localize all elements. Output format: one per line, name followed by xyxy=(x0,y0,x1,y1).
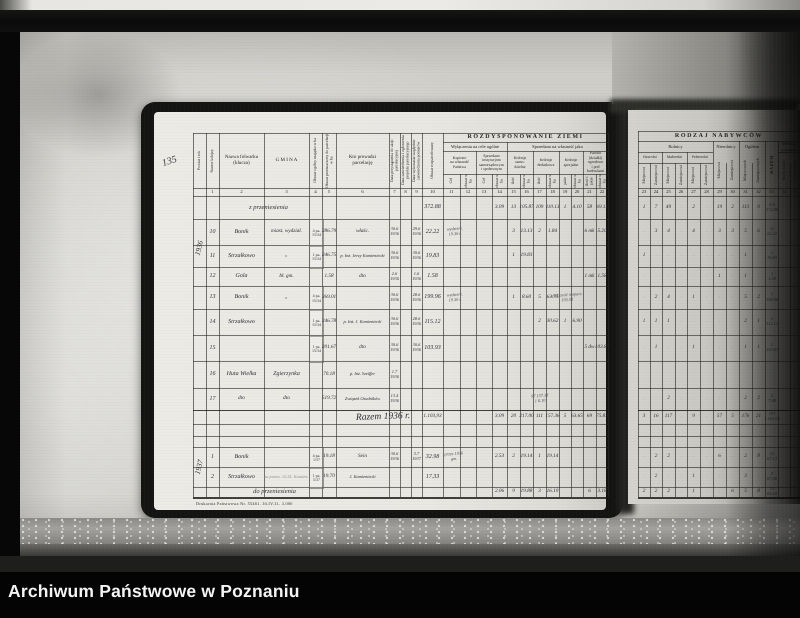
header-unit: obszar w ha xyxy=(546,174,559,188)
handwritten-cell: Bonik xyxy=(219,286,264,309)
archival-photo-scene: 135 Drukarnia Państwowa Nr. 55481. 30.IV… xyxy=(0,0,800,618)
handwritten-cell: 109 xyxy=(533,196,546,219)
ditto-dot: · xyxy=(726,245,739,267)
header-cell: Miejscowych xyxy=(739,152,752,188)
header-unit: Cel xyxy=(443,174,460,188)
handwritten-cell: 110.13 xyxy=(546,196,559,219)
ditto-dot: · xyxy=(700,219,713,245)
header-cell: Miejscowi xyxy=(713,152,726,188)
handwritten-cell: 8 xyxy=(752,487,765,497)
grid-line xyxy=(193,309,608,310)
ditto-dot: · xyxy=(700,410,713,424)
grid-line xyxy=(608,133,609,497)
handwritten-cell: 1 xyxy=(507,245,520,267)
handwritten-cell: 1.6 1936 xyxy=(411,267,422,286)
handwritten-cell: 2 xyxy=(752,388,765,410)
handwritten-cell: 117 xyxy=(662,410,675,424)
handwritten-cell: 30.6 1936 xyxy=(411,245,422,267)
handwritten-cell: 13.4 1936 xyxy=(389,388,400,410)
column-number: 25 xyxy=(662,188,675,196)
header-cell: Zamiejscowi xyxy=(650,163,662,188)
grid-line xyxy=(193,388,608,389)
column-number: 32 xyxy=(752,188,765,196)
handwritten-cell: 30.6 1936 xyxy=(389,245,400,267)
handwritten-cell: 3 xyxy=(507,219,520,245)
handwritten-cell: Strzałkowo xyxy=(219,309,264,335)
handwritten-cell: 1 xyxy=(752,335,765,361)
header-cell: Zamiejscowi xyxy=(700,163,713,188)
handwritten-cell: 1.103,93 xyxy=(422,410,443,424)
ditto-dot: · xyxy=(713,335,726,361)
column-number: 17 xyxy=(533,188,546,196)
grid-line xyxy=(193,487,608,488)
header-unit: obszar w ha xyxy=(596,174,608,188)
grid-line xyxy=(638,424,800,425)
handwritten-cell: 1 xyxy=(739,267,752,286)
handwritten-cell: 2 xyxy=(739,309,752,335)
grid-line xyxy=(638,309,800,310)
column-number: 24 xyxy=(650,188,662,196)
ditto-dot: · xyxy=(638,467,650,487)
header-unit: ilość i jakie xyxy=(583,174,596,188)
ditto-dot: · xyxy=(726,267,739,286)
handwritten-cell: 6.90 xyxy=(571,309,583,335)
grid-line xyxy=(638,286,800,287)
ditto-dot: · xyxy=(638,219,650,245)
caption-bar: Archiwum Państwowe w Poznaniu xyxy=(0,572,800,618)
handwritten-cell: 63.65 xyxy=(571,410,583,424)
handwritten-cell: 1 xyxy=(638,196,650,219)
handwritten-cell: 286.79 xyxy=(322,219,336,245)
grid-line xyxy=(476,151,477,497)
header-cell: Zamiejscowi xyxy=(726,152,739,188)
header-cell: Zamiejscowych xyxy=(752,152,765,188)
handwritten-cell: 19.83 xyxy=(422,245,443,267)
handwritten-cell: 16 xyxy=(206,361,219,388)
handwritten-cell: 30.6 1936 xyxy=(389,219,400,245)
ditto-dot: · xyxy=(675,309,687,335)
handwritten-cell: 105.87 xyxy=(520,196,533,219)
grid-line xyxy=(638,497,800,499)
ditto-dot: · xyxy=(687,309,700,335)
header-unit: obszar w ha xyxy=(520,174,533,188)
header-subgroup: Pełnorolni xyxy=(687,152,713,163)
handwritten-cell: 6 xyxy=(726,487,739,497)
column-number: 18 xyxy=(546,188,559,196)
ditto-dot: · xyxy=(650,245,662,267)
column-number: 7 xyxy=(389,188,400,196)
handwritten-cell: 1 xyxy=(638,309,650,335)
ditto-dot: · xyxy=(650,388,662,410)
ditto-dot: · xyxy=(687,447,700,467)
header-unit: ilość xyxy=(533,174,546,188)
header-cell-prz: Obszar przeznaczony do parcelacji w ha xyxy=(322,133,336,188)
handwritten-cell: 8.60 xyxy=(520,286,533,309)
column-number: 30 xyxy=(726,188,739,196)
handwritten-cell: 4 xyxy=(687,219,700,245)
handwritten-cell: 1 xyxy=(687,487,700,497)
grid-line xyxy=(193,245,608,246)
handwritten-cell: 30.6 1936 xyxy=(389,447,400,467)
grid-line xyxy=(193,335,608,336)
column-number: 1 xyxy=(206,188,219,196)
column-number: 6 xyxy=(336,188,389,196)
handwritten-cell: 2 xyxy=(507,447,520,467)
handwritten-cell: 1 xyxy=(687,467,700,487)
header-unit: jakie xyxy=(559,174,571,188)
grid-line xyxy=(193,424,608,425)
handwritten-cell: 1 xyxy=(533,447,546,467)
grid-line xyxy=(638,436,800,437)
ditto-dot: · xyxy=(675,467,687,487)
grid-line xyxy=(638,335,800,336)
ditto-dot: · xyxy=(662,245,675,267)
grid-line xyxy=(638,245,800,246)
handwritten-cell: 14 xyxy=(206,309,219,335)
column-number: 31 xyxy=(739,188,752,196)
header-cell-n: Numer kolejny xyxy=(206,133,219,188)
handwritten-cell: 1 xyxy=(739,335,752,361)
column-number: 5 xyxy=(322,188,336,196)
handwritten-cell: 19.88 xyxy=(520,487,533,497)
handwritten-cell: 1 xyxy=(559,309,571,335)
handwritten-cell: 5 xyxy=(739,487,752,497)
handwritten-cell: 1 xyxy=(713,267,726,286)
column-number: 28 xyxy=(700,188,713,196)
handwritten-cell: 9 xyxy=(687,410,700,424)
header-subgroup: Bezrolni xyxy=(638,152,662,163)
header-unit: Cel xyxy=(476,174,492,188)
handwritten-cell: 2 xyxy=(687,196,700,219)
handwritten-cell: Strzałkowo xyxy=(219,467,264,487)
handwritten-cell: 2 xyxy=(650,447,662,467)
handwritten-cell: 3 xyxy=(713,219,726,245)
handwritten-cell: 201.67 xyxy=(322,335,336,361)
handwritten-cell: 13 xyxy=(507,196,520,219)
handwritten-cell: 21 xyxy=(752,410,765,424)
handwritten-cell: 5 dw xyxy=(583,335,596,361)
ditto-dot: · xyxy=(700,309,713,335)
ditto-dot: · xyxy=(700,487,713,497)
header-cell: Rzym.-katol. xyxy=(778,152,790,188)
handwritten-cell: 16 xyxy=(650,410,662,424)
handwritten-cell: 5 xyxy=(726,410,739,424)
handwritten-cell: Zgierzynka xyxy=(264,361,309,388)
handwritten-cell: 103.87 xyxy=(596,335,608,361)
grid-line xyxy=(638,467,800,468)
handwritten-cell: 3 xyxy=(533,487,546,497)
column-number: 2 xyxy=(219,188,264,196)
ditto-dot: · xyxy=(700,335,713,361)
handwritten-cell: 519.72 xyxy=(322,388,336,410)
header-group: Według wyznania xyxy=(778,141,800,152)
column-number xyxy=(193,188,206,196)
handwritten-cell: 1 xyxy=(650,335,662,361)
header-group: Parcele (działki) ogrodowe i pod budowla… xyxy=(583,151,608,174)
grid-line xyxy=(193,286,608,287)
handwritten-cell: 115.12 xyxy=(422,309,443,335)
ditto-dot: · xyxy=(700,267,713,286)
handwritten-cell: 19 xyxy=(713,196,726,219)
handwritten-cell: 4 xyxy=(662,286,675,309)
header-group: Nierolnicy xyxy=(713,141,739,152)
header-cell-kto: Kto prowadzi parcelację xyxy=(336,133,389,188)
ditto-dot: · xyxy=(700,388,713,410)
header-cell: Miejscowi xyxy=(687,163,700,188)
handwritten-cell: 1.58 xyxy=(596,267,608,286)
handwritten-cell: 28.6 1936 xyxy=(411,309,422,335)
handwritten-cell: 103.93 xyxy=(422,335,443,361)
handwritten-cell: 246.78 xyxy=(322,309,336,335)
handwritten-cell: Bonik xyxy=(219,219,264,245)
handwritten-cell: 1 xyxy=(739,245,752,267)
ditto-dot: · xyxy=(687,388,700,410)
grid-line xyxy=(193,267,608,268)
handwritten-cell: 19.83 xyxy=(520,245,533,267)
handwritten-cell: 5 xyxy=(739,286,752,309)
handwritten-cell: 2 xyxy=(650,286,662,309)
column-number: 22 xyxy=(596,188,608,196)
handwritten-cell: 3 xyxy=(650,219,662,245)
handwritten-cell: 199.96 xyxy=(422,286,443,309)
handwritten-cell: 2 xyxy=(662,388,675,410)
ditto-dot: · xyxy=(752,245,765,267)
handwritten-cell: 30.62 xyxy=(546,309,559,335)
column-number: 20 xyxy=(571,188,583,196)
ditto-dot: · xyxy=(752,267,765,286)
handwritten-cell: 6 xyxy=(583,487,596,497)
ditto-dot: · xyxy=(675,388,687,410)
ditto-dot: · xyxy=(638,335,650,361)
handwritten-cell: 12 xyxy=(206,267,219,286)
ditto-dot: · xyxy=(638,447,650,467)
handwritten-cell: 97 157.38 1 6.10 xyxy=(522,387,557,411)
ditto-dot: · xyxy=(662,267,675,286)
column-number: 8 xyxy=(400,188,411,196)
handwritten-cell: Sein xyxy=(336,447,389,467)
header-group: Kolonje samo- dzielne xyxy=(507,151,533,174)
handwritten-cell: 1 xyxy=(206,447,219,467)
handwritten-cell: p. Inż. J. Kamieniecki xyxy=(336,309,389,335)
handwritten-cell: 1 xyxy=(752,309,765,335)
column-number: 13 xyxy=(476,188,492,196)
handwritten-cell: dto xyxy=(336,267,389,286)
handwritten-cell: 5 xyxy=(559,410,571,424)
header-rodzaj-nabywcow: RODZAJ NABYWCÓW xyxy=(638,131,800,141)
column-number: 14 xyxy=(492,188,507,196)
header-cell: Zamiejscowi xyxy=(675,163,687,188)
column-number: 4 xyxy=(309,188,322,196)
handwritten-cell: dto xyxy=(264,388,309,410)
handwritten-cell: Bonik xyxy=(219,447,264,467)
ditto-dot: · xyxy=(726,467,739,487)
handwritten-cell: 2.53 xyxy=(492,447,507,467)
handwritten-cell: 5 xyxy=(739,219,752,245)
column-number: 33 xyxy=(765,188,778,196)
handwritten-cell: wydzierż. 19.36 r. xyxy=(433,285,477,311)
header-cell-naz: Nazwa folwarku (klucza) xyxy=(219,133,264,188)
handwritten-cell: wydzierż. 19.36 r. xyxy=(433,218,477,247)
grid-line xyxy=(559,151,560,497)
handwritten-cell: 19.18 xyxy=(322,447,336,467)
grid-line xyxy=(533,151,534,497)
handwritten-cell: 2 xyxy=(726,196,739,219)
header-unit: ilość xyxy=(507,174,520,188)
grid-line xyxy=(193,361,608,362)
ditto-dot: · xyxy=(675,335,687,361)
ditto-dot: · xyxy=(675,245,687,267)
column-number: 27 xyxy=(687,188,700,196)
ditto-dot: · xyxy=(675,267,687,286)
handwritten-cell: 1.58 xyxy=(322,267,336,286)
handwritten-cell: 19.14 xyxy=(520,447,533,467)
handwritten-cell: 5.7 1937 xyxy=(411,447,422,467)
column-number: 23 xyxy=(638,188,650,196)
handwritten-cell: 70.18 xyxy=(322,361,336,388)
handwritten-cell: 157.36 xyxy=(546,410,559,424)
handwritten-cell: właśc. xyxy=(336,219,389,245)
handwritten-cell: 2 xyxy=(650,467,662,487)
handwritten-cell: 3 xyxy=(638,410,650,424)
handwritten-cell: 30.6 1936 xyxy=(389,309,400,335)
handwritten-cell: 5 xyxy=(533,286,546,309)
ditto-dot: · xyxy=(713,388,726,410)
grid-line xyxy=(193,497,608,499)
handwritten-cell: Gola xyxy=(219,267,264,286)
handwritten-cell: 2 xyxy=(739,447,752,467)
header-sprzedano: Sprzedano na własność jako xyxy=(507,142,608,151)
grid-line xyxy=(193,467,608,468)
ditto-dot: · xyxy=(726,335,739,361)
handwritten-cell: J. Kamieniecki xyxy=(336,467,389,487)
handwritten-cell: 17 xyxy=(206,388,219,410)
ditto-dot: · xyxy=(675,487,687,497)
handwritten-cell: 16.10 xyxy=(546,487,559,497)
handwritten-cell: 1 xyxy=(638,245,650,267)
handwritten-cell: 2 xyxy=(752,286,765,309)
ditto-dot: · xyxy=(700,467,713,487)
handwritten-cell: 3.18 xyxy=(596,487,608,497)
handwritten-cell: 217.00 xyxy=(520,410,533,424)
header-cell: Miejscowi xyxy=(638,163,650,188)
book-bottom-edge xyxy=(20,518,800,544)
ditto-dot: · xyxy=(650,267,662,286)
table-surface-shadow xyxy=(20,544,800,556)
handwritten-cell: 269.01 xyxy=(322,286,336,309)
ditto-dot: · xyxy=(713,286,726,309)
handwritten-cell: „ xyxy=(264,286,309,309)
handwritten-cell: 2 xyxy=(638,487,650,497)
handwritten-cell: miast. wydział. xyxy=(264,219,309,245)
handwritten-cell: dto xyxy=(336,335,389,361)
handwritten-cell: 29.6 1936 xyxy=(411,219,422,245)
ditto-dot: · xyxy=(713,309,726,335)
handwritten-cell: 3.09 xyxy=(492,196,507,219)
handwritten-cell: 6 xyxy=(713,447,726,467)
handwritten-cell: 69 xyxy=(583,410,596,424)
handwritten-cell: 3 xyxy=(739,467,752,487)
ditto-dot: · xyxy=(662,335,675,361)
handwritten-cell: 113 xyxy=(739,196,752,219)
grid-line xyxy=(638,196,800,197)
grid-line xyxy=(638,487,800,488)
handwritten-cell: 2 xyxy=(533,219,546,245)
ditto-dot: · xyxy=(638,388,650,410)
photo-bottom-band xyxy=(0,556,800,572)
handwritten-cell: przez 1936 gm. xyxy=(435,446,472,468)
ditto-dot: · xyxy=(700,245,713,267)
ditto-dot: · xyxy=(726,286,739,309)
grid-line xyxy=(638,410,800,411)
header-cell-roz: Obszar rozparcelowany xyxy=(422,133,443,188)
handwritten-cell: 2.6 1936 xyxy=(389,267,400,286)
column-number: 10 xyxy=(422,188,443,196)
handwritten-cell: „ xyxy=(264,245,309,267)
grid-line xyxy=(193,447,608,448)
handwritten-cell: 20 xyxy=(507,410,520,424)
grid-line xyxy=(193,436,608,437)
handwritten-cell: 19.70 xyxy=(322,467,336,487)
header-subgroup: Małorolni xyxy=(662,152,687,163)
handwritten-cell: 1 xyxy=(650,309,662,335)
handwritten-cell: 8 xyxy=(752,447,765,467)
ditto-dot: · xyxy=(662,467,675,487)
handwritten-cell: 63.75 xyxy=(546,286,559,309)
ditto-dot: · xyxy=(675,410,687,424)
handwritten-cell: 111 xyxy=(533,410,546,424)
ditto-dot: · xyxy=(638,267,650,286)
handwritten-cell: 30.6 1936 xyxy=(389,286,400,309)
column-number: 35 xyxy=(790,188,800,196)
column-number: 16 xyxy=(520,188,533,196)
handwritten-cell: 15 xyxy=(206,335,219,361)
grid-line xyxy=(583,151,584,497)
handwritten-cell: 2 xyxy=(533,309,546,335)
ditto-dot: · xyxy=(700,447,713,467)
handwritten-cell: p. Inż. Jerzy Kamieniecki xyxy=(336,245,389,267)
handwritten-cell: 1.58 xyxy=(422,267,443,286)
header-unit: obszar w ha xyxy=(492,174,507,188)
grid-line xyxy=(193,196,608,197)
handwritten-cell: 32.98 xyxy=(422,447,443,467)
handwritten-cell: 5.20 xyxy=(596,219,608,245)
header-cell-d1: Data przystąpienia do akcji parcelacyjne… xyxy=(389,133,400,188)
ditto-dot: · xyxy=(675,286,687,309)
grid-line xyxy=(638,219,800,220)
header-group: Kolonje dodatkowe xyxy=(533,151,559,174)
handwritten-cell: 1 xyxy=(559,196,571,219)
handwritten-cell: 13 xyxy=(206,286,219,309)
handwritten-cell: do przeniesienia xyxy=(230,487,320,497)
column-number: 15 xyxy=(507,188,520,196)
column-number: 11 xyxy=(443,188,460,196)
handwritten-cell: 49 xyxy=(662,196,675,219)
header-cell-gm: G M I N A xyxy=(264,133,309,188)
handwritten-cell: za przew. 10.IX. Kamien. xyxy=(251,467,323,487)
ditto-dot: · xyxy=(638,286,650,309)
grid-line xyxy=(638,361,800,362)
handwritten-cell: 58 xyxy=(583,196,596,219)
handwritten-cell: 22.22 xyxy=(422,219,443,245)
grid-line xyxy=(638,447,800,448)
handwritten-cell: 9 xyxy=(507,487,520,497)
header-cell-ob: Obszar ogólny majątku w ha xyxy=(309,133,322,188)
handwritten-cell: 6 mk xyxy=(583,219,596,245)
column-number: 21 xyxy=(583,188,596,196)
handwritten-cell: 2.06 xyxy=(492,487,507,497)
handwritten-cell: 1 mk xyxy=(583,267,596,286)
handwritten-cell: 4.10 xyxy=(571,196,583,219)
